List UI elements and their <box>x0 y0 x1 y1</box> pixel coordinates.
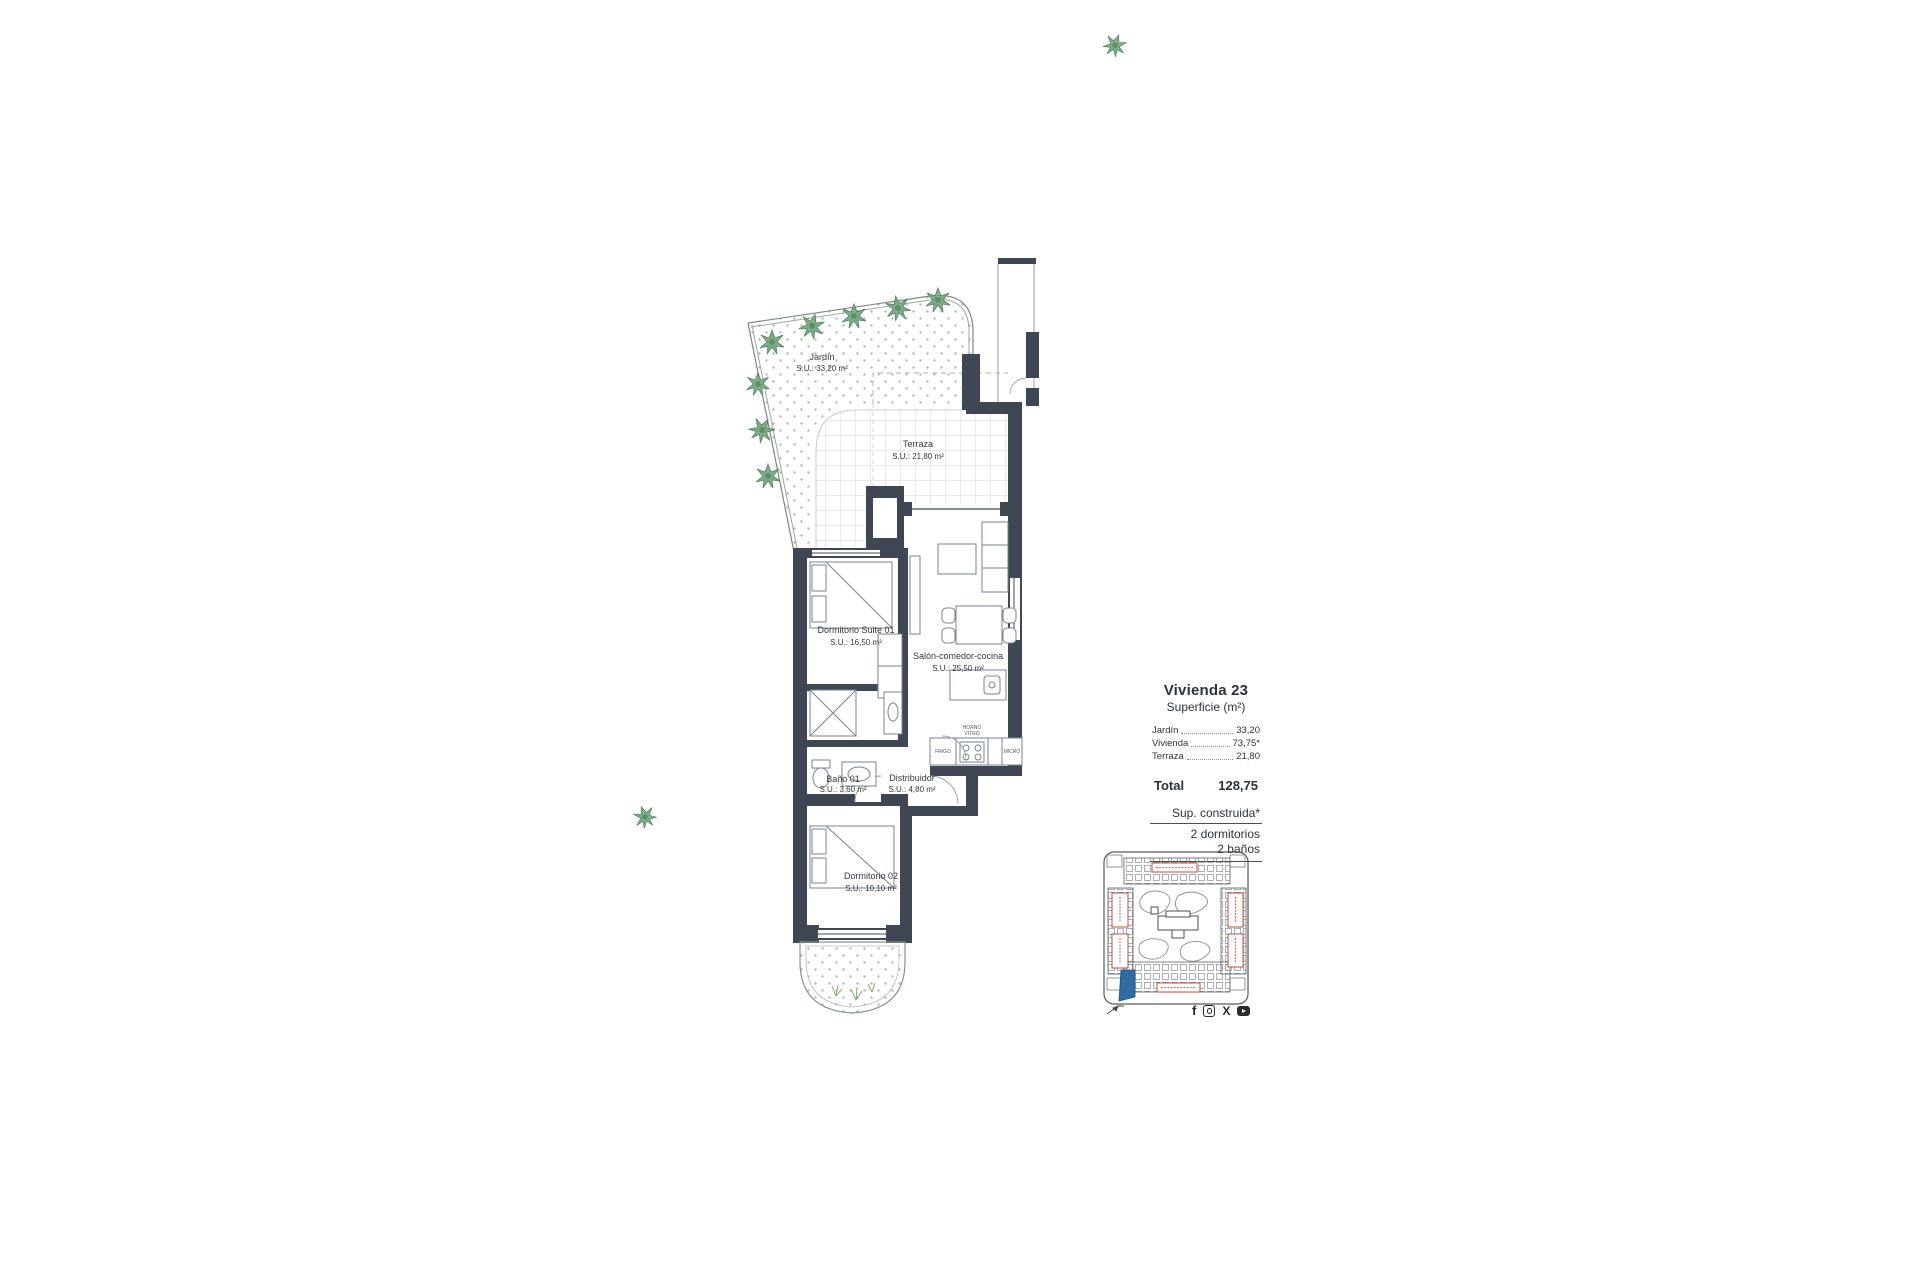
plan-sheet: { "floor_plan": { "rooms": { "jardin": {… <box>0 0 1920 1280</box>
unit-subtitle: Superficie (m²) <box>1150 700 1262 714</box>
unit-summary-panel: Vivienda 23 Superficie (m²) Jardín 33,20… <box>1150 682 1262 862</box>
dot-leader <box>1187 759 1234 760</box>
bottom-garden-bed <box>800 942 905 1013</box>
total-label: Total <box>1154 778 1184 793</box>
room-area-distribuidor: S.U.: 4,80 m² <box>888 785 935 794</box>
entry-walkway <box>998 258 1039 406</box>
site-key-plan <box>1104 852 1248 1014</box>
area-row-vivienda: Vivienda 73,75* <box>1150 737 1262 750</box>
total-value: 128,75 <box>1218 778 1258 793</box>
room-area-jardin: S.U.: 33,20 m² <box>796 364 848 373</box>
notes-block: Sup. construida* 2 dormitorios 2 baños <box>1150 806 1262 862</box>
room-label-jardin: Jardín <box>809 352 834 362</box>
area-value: 73,75* <box>1233 737 1260 750</box>
room-label-salon: Salón-comedor-cocina <box>913 651 1003 661</box>
note-dormitorios: 2 dormitorios <box>1150 827 1262 842</box>
area-table: Jardín 33,20 Vivienda 73,75* Terraza 21,… <box>1150 724 1262 763</box>
room-label-distribuidor: Distribuidor <box>889 773 935 783</box>
dot-leader <box>1191 746 1229 747</box>
label-vitro: VITRO <box>964 731 979 737</box>
x-icon[interactable]: X <box>1222 1005 1230 1017</box>
label-micro: MICRO <box>1004 749 1021 755</box>
instagram-icon[interactable] <box>1203 1005 1215 1017</box>
room-label-bano1: Baño 01 <box>826 774 860 784</box>
unit-title: Vivienda 23 <box>1150 682 1262 699</box>
unit-location-highlight <box>1119 970 1135 1001</box>
area-row-terraza: Terraza 21,80 <box>1150 750 1262 763</box>
area-value: 21,80 <box>1236 750 1260 763</box>
facebook-icon[interactable]: f <box>1192 1005 1196 1017</box>
room-label-dormitorio2: Dormitorio 02 <box>844 871 898 881</box>
room-label-terraza: Terraza <box>903 439 933 449</box>
note-sup-construida: Sup. construida* <box>1150 806 1262 824</box>
room-area-salon: S.U.: 25,50 m² <box>932 664 984 673</box>
area-label: Terraza <box>1152 750 1184 763</box>
total-row: Total 128,75 <box>1150 778 1262 793</box>
furniture <box>810 522 1022 888</box>
youtube-icon[interactable] <box>1237 1006 1250 1016</box>
room-area-terraza: S.U.: 21,80 m² <box>892 452 944 461</box>
area-label: Vivienda <box>1152 737 1188 750</box>
room-area-suite: S.U.: 16,50 m² <box>830 638 882 647</box>
room-label-suite: Dormitorio Suite 01 <box>817 625 894 635</box>
label-frigo: FRIGO <box>935 749 951 755</box>
dot-leader <box>1181 733 1233 734</box>
area-row-jardin: Jardín 33,20 <box>1150 724 1262 737</box>
area-label: Jardín <box>1152 724 1178 737</box>
area-value: 33,20 <box>1236 724 1260 737</box>
room-area-dormitorio2: S.U.: 10,10 m² <box>845 884 897 893</box>
room-area-bano1: S.U.: 3,60 m² <box>819 785 866 794</box>
floor-plan-drawing: Jardín S.U.: 33,20 m² Terraza S.U.: 21,8… <box>0 0 1920 1280</box>
social-links: f X <box>1192 1004 1250 1018</box>
note-banos: 2 baños <box>1150 842 1262 857</box>
north-arrow-icon <box>1107 1006 1124 1014</box>
